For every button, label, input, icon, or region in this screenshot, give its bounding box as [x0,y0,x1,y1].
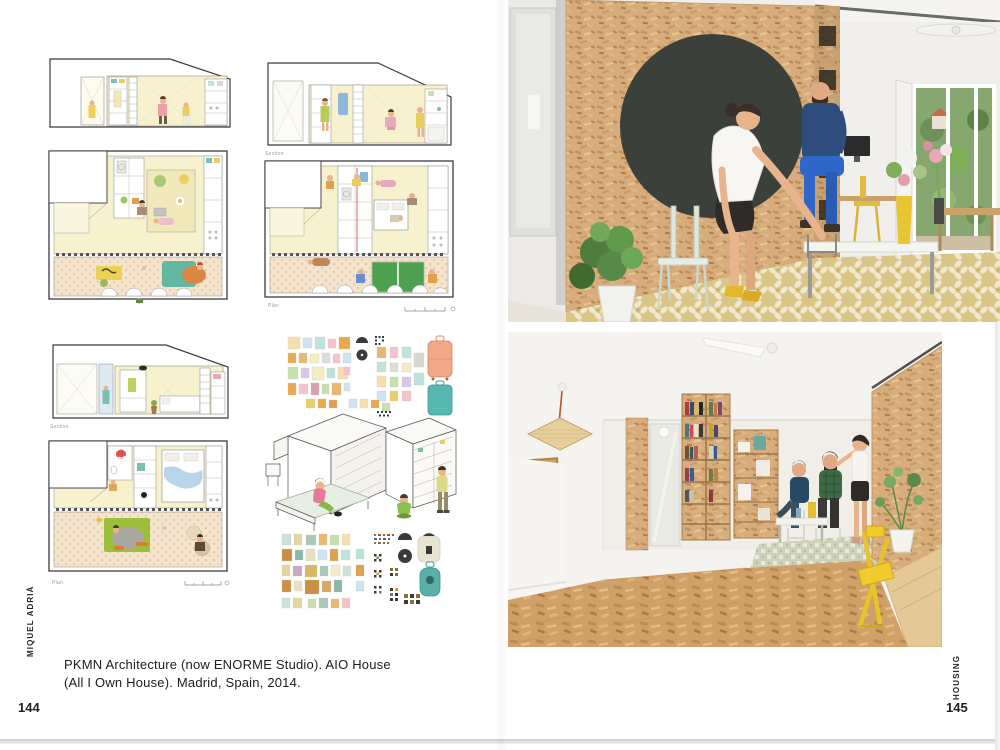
axonometric-units [258,406,458,546]
photo-top-osb-chalkboard-room [508,0,1000,322]
spine-label-section: HOUSING [952,638,961,700]
spine-label-author: MIQUEL ADRIÀ [26,595,35,657]
figure-label-plan-top: Plan [268,303,279,309]
page-gutter [496,0,506,750]
drawing-section-3 [48,342,233,422]
osb-cabinet [734,430,778,538]
right-page: HOUSING 145 [500,0,1000,750]
caption: PKMN Architecture (now ENORME Studio). A… [64,656,404,691]
scale-bar-bottom [183,579,231,589]
figure-label-section-bottom: Section [50,424,69,430]
scale-bar-top [403,305,458,315]
book-spread: Section [0,0,1000,750]
belongings-grid-2 [278,532,453,612]
drawing-section-1 [45,57,235,132]
drawing-section-2 [263,57,458,149]
left-page: Section [0,0,500,750]
figure-label-section-top: Section [265,151,284,157]
page-number-right: 145 [946,700,968,715]
photo-bottom-sliding-wall-room [508,332,942,647]
bookshelf [682,394,730,540]
drawing-plan-2 [260,158,458,300]
caption-line-2: (All I Own House). Madrid, Spain, 2014. [64,674,404,692]
caption-line-1: PKMN Architecture (now ENORME Studio). A… [64,656,404,674]
drawing-plan-3 [44,438,232,578]
page-number-left: 144 [18,700,40,715]
page-right-edge [995,322,1000,750]
drawing-plan-1 [44,148,232,306]
figure-label-plan-bottom: Plan [52,580,63,586]
